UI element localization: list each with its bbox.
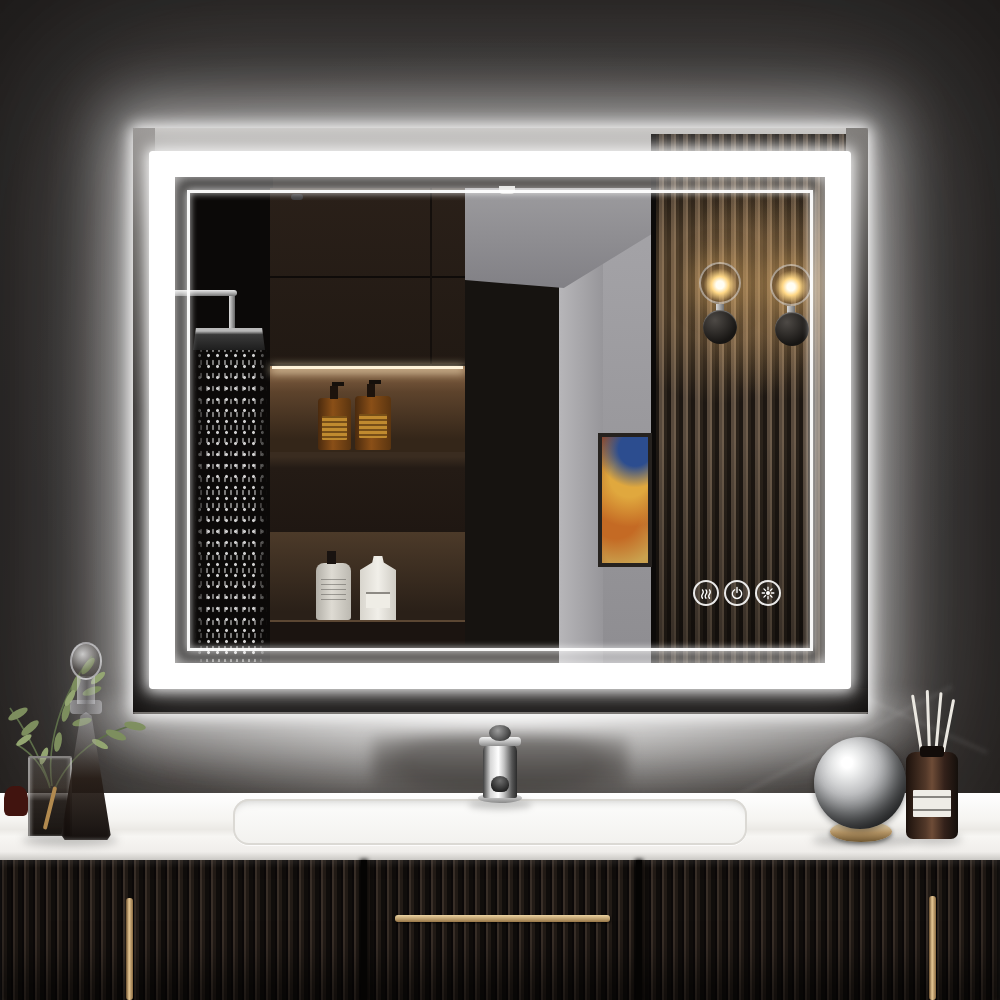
fluted-cabinet [0,860,1000,1000]
cabinet-handle-right [929,896,936,1000]
cabinet-seam [361,860,367,1000]
chrome-sphere-ornament [814,737,906,829]
faucet-knob [489,725,511,741]
decanter-neck [77,676,95,704]
chrome-faucet [483,744,517,798]
decanter-stopper [70,642,102,680]
led-mirror [133,128,868,714]
diffuser-label [913,790,951,817]
scene [0,0,1000,1000]
diffuser-cap [920,746,944,757]
mirror-bottom-edge [133,688,868,714]
small-red-object [4,786,28,816]
drawer-handle-center [395,915,610,922]
gold-twig [43,786,58,830]
cabinet-seam [636,860,642,1000]
cabinet-handle-left [126,898,133,1000]
led-inner-line [187,190,813,651]
